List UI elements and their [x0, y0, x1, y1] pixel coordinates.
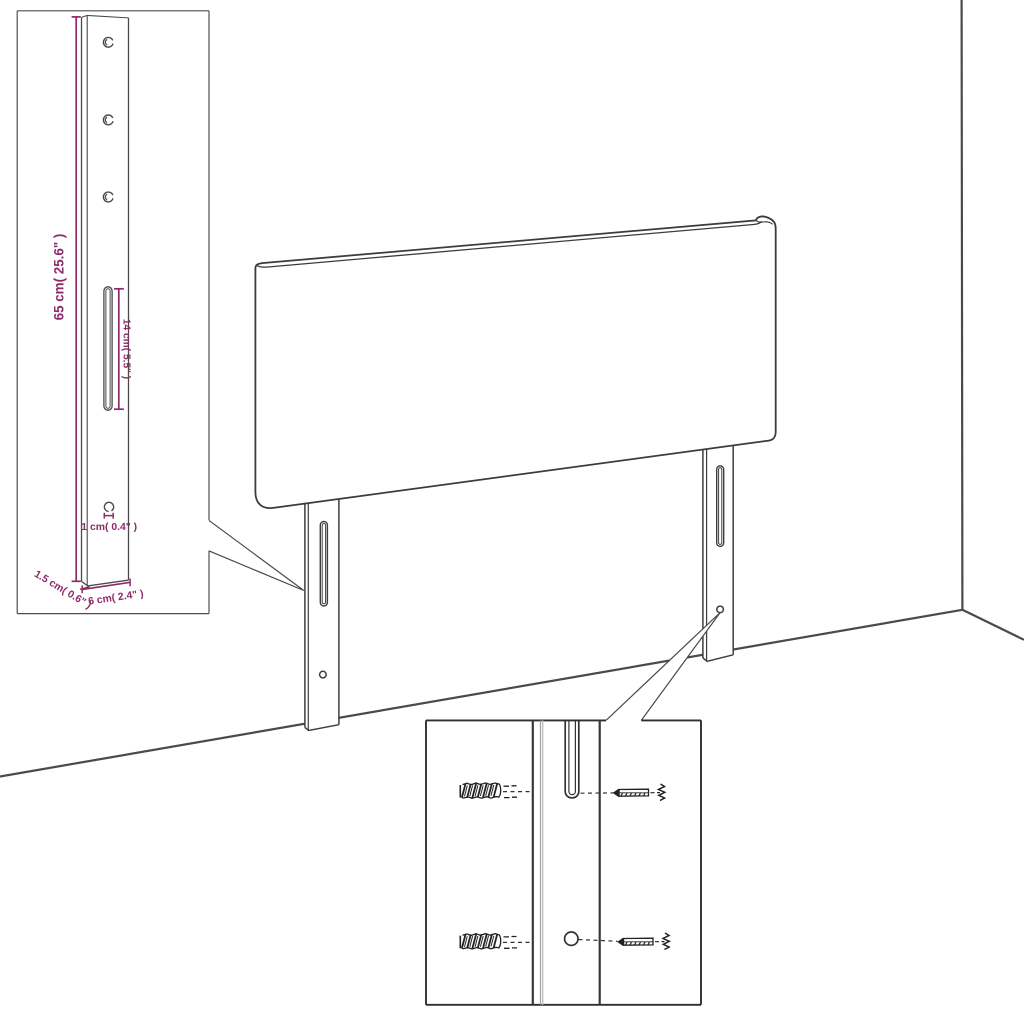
svg-text:65 cm( 25.6" ): 65 cm( 25.6" )	[52, 234, 67, 321]
svg-text:1 cm( 0.4" ): 1 cm( 0.4" )	[81, 522, 137, 533]
svg-text:14 cm( 5.5" ): 14 cm( 5.5" )	[121, 319, 132, 379]
